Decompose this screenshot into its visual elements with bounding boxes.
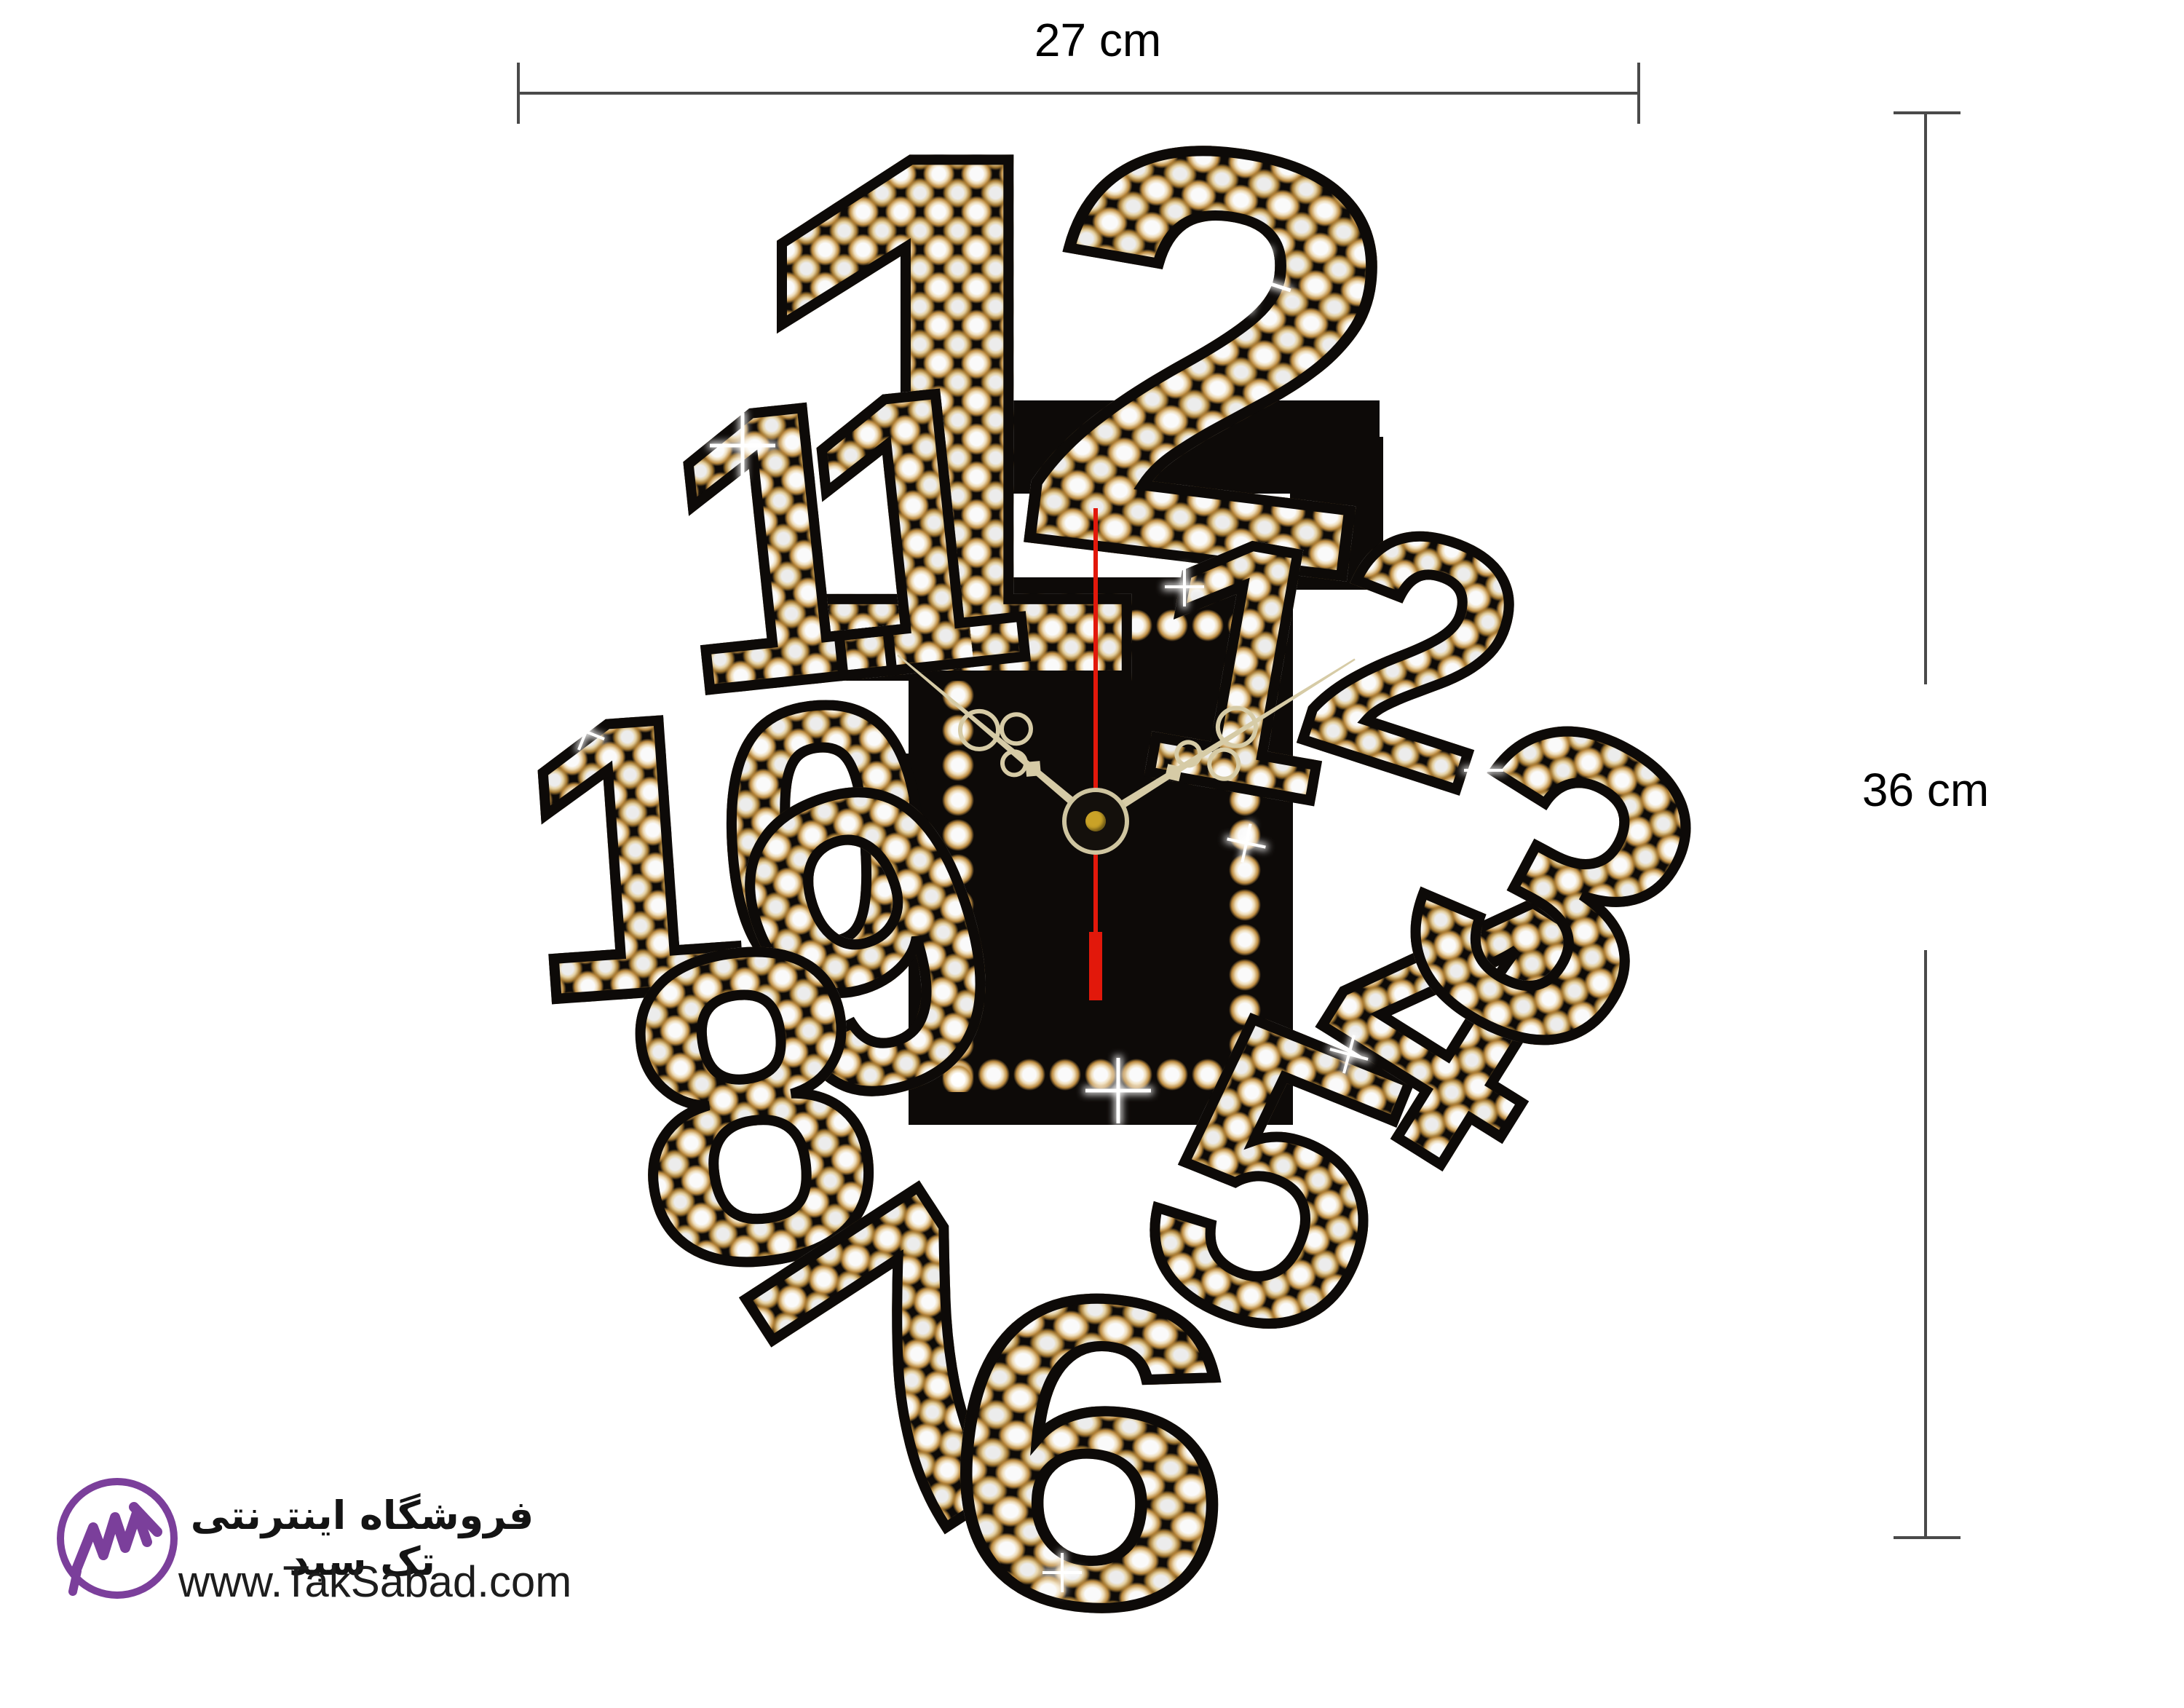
width-dimension-label: 27 cm (996, 15, 1200, 66)
height-dimension-line-upper (1924, 113, 1927, 684)
hour-hand-diamond (1025, 761, 1041, 777)
height-dimension-tick-bottom (1894, 1536, 1961, 1539)
store-website: www.TakSabad.com (178, 1557, 546, 1607)
product-photo: 1 2 11 10 9 8 7 6 5 4 3 2 1 (0, 0, 2184, 1638)
width-dimension-tick-left (517, 63, 520, 124)
second-hand-counterweight (1089, 932, 1102, 1000)
height-dimension-label: 36 cm (1824, 764, 2027, 815)
store-logo-icon (48, 1475, 179, 1621)
second-hand-shaft (1093, 508, 1098, 821)
width-dimension-tick-right (1637, 63, 1640, 124)
height-dimension-line-lower (1924, 950, 1927, 1538)
width-dimension-line (518, 92, 1640, 95)
height-dimension-tick-top (1894, 111, 1961, 114)
hand-pivot (1062, 788, 1129, 855)
pivot-screw (1085, 811, 1106, 831)
